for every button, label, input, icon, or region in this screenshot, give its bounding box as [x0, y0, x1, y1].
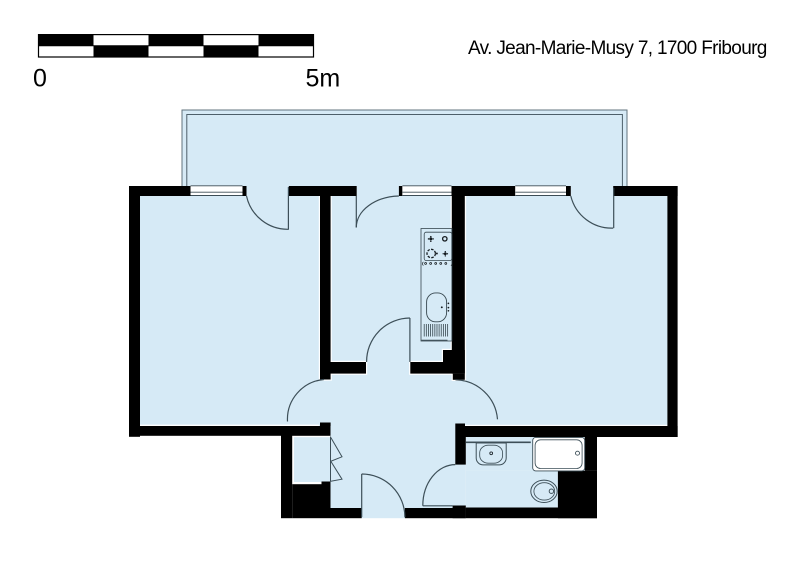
svg-text:0: 0: [33, 65, 47, 93]
svg-text:5m: 5m: [306, 65, 341, 93]
svg-text:Av. Jean-Marie-Musy 7, 1700 Fr: Av. Jean-Marie-Musy 7, 1700 Fribourg: [468, 38, 767, 59]
